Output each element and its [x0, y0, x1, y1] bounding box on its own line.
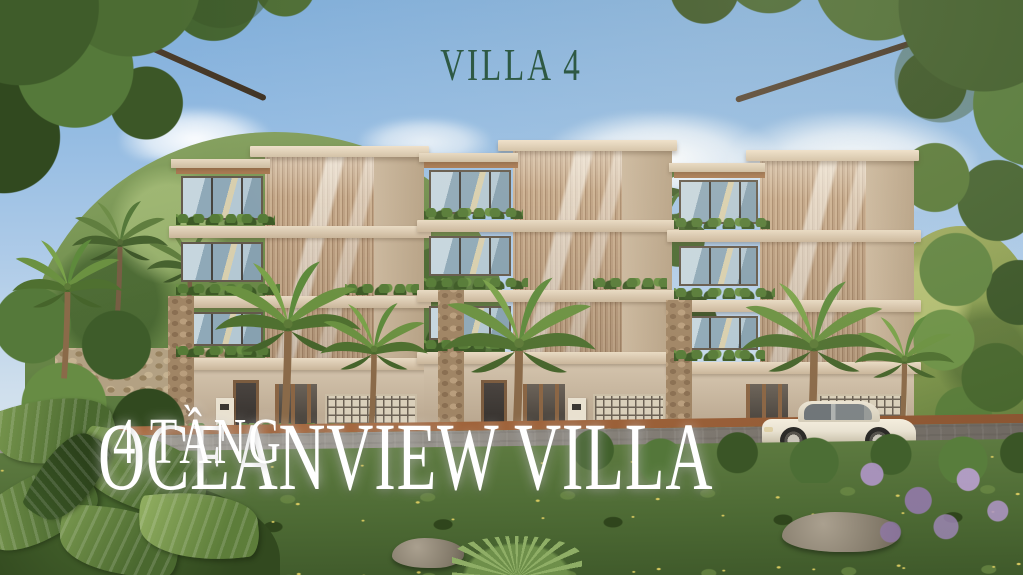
oceanview-villa-poster: VILLA 4 OCEANVIEW VILLA4 TẦNG [0, 0, 1023, 575]
floor-slab [169, 226, 432, 238]
wood-soffit [424, 161, 518, 168]
car-window [804, 404, 872, 420]
purple-flowers [835, 448, 1020, 553]
tree-canopy-top-right [640, 0, 1023, 230]
floor-slab [667, 230, 921, 242]
glass-window [429, 236, 511, 276]
agave-plant [452, 536, 582, 575]
main-title-suffix: 4 TẦNG [113, 409, 283, 475]
planter-greenery [593, 278, 667, 289]
car-cabin [798, 401, 880, 422]
planter-greenery [424, 208, 523, 219]
wing-roof [419, 153, 518, 162]
tree-canopy-top-left [0, 0, 390, 220]
top-title: VILLA 4 [143, 42, 880, 88]
